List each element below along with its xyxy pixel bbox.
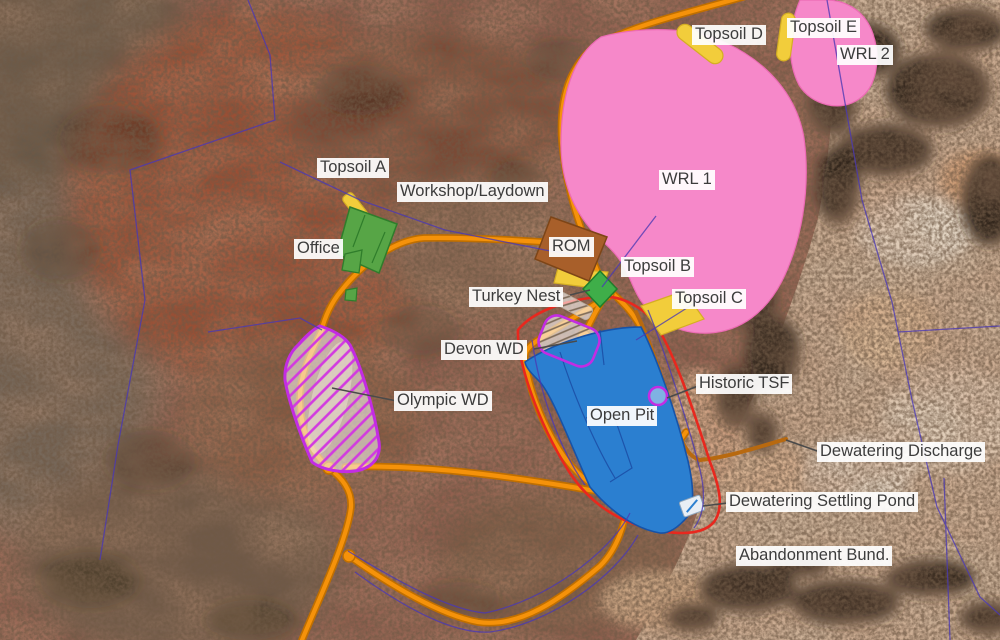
label-turkey-nest: Turkey Nest xyxy=(469,287,563,307)
mine-site-map: Topsoil D Topsoil E WRL 2 WRL 1 Topsoil … xyxy=(0,0,1000,640)
label-wrl-2: WRL 2 xyxy=(837,45,893,65)
label-wrl-1: WRL 1 xyxy=(659,170,715,190)
label-dewatering-settling-pond: Dewatering Settling Pond xyxy=(726,492,918,512)
label-workshop-laydown: Workshop/Laydown xyxy=(397,182,548,202)
label-topsoil-d: Topsoil D xyxy=(692,25,766,45)
label-topsoil-a: Topsoil A xyxy=(317,158,389,178)
label-topsoil-c: Topsoil C xyxy=(672,289,746,309)
label-historic-tsf: Historic TSF xyxy=(696,374,792,394)
label-office: Office xyxy=(294,239,343,259)
historic-tsf-marker xyxy=(649,387,667,405)
label-devon-wd: Devon WD xyxy=(441,340,527,360)
label-olympic-wd: Olympic WD xyxy=(394,391,492,411)
office-small-pad xyxy=(345,288,357,301)
label-dewatering-discharge: Dewatering Discharge xyxy=(817,442,985,462)
office-area xyxy=(342,250,362,273)
label-rom: ROM xyxy=(549,237,594,257)
site-map-canvas xyxy=(0,0,1000,640)
label-open-pit: Open Pit xyxy=(587,406,657,426)
label-topsoil-b: Topsoil B xyxy=(621,257,694,277)
label-abandonment-bund: Abandonment Bund. xyxy=(736,546,892,566)
label-topsoil-e: Topsoil E xyxy=(787,18,860,38)
